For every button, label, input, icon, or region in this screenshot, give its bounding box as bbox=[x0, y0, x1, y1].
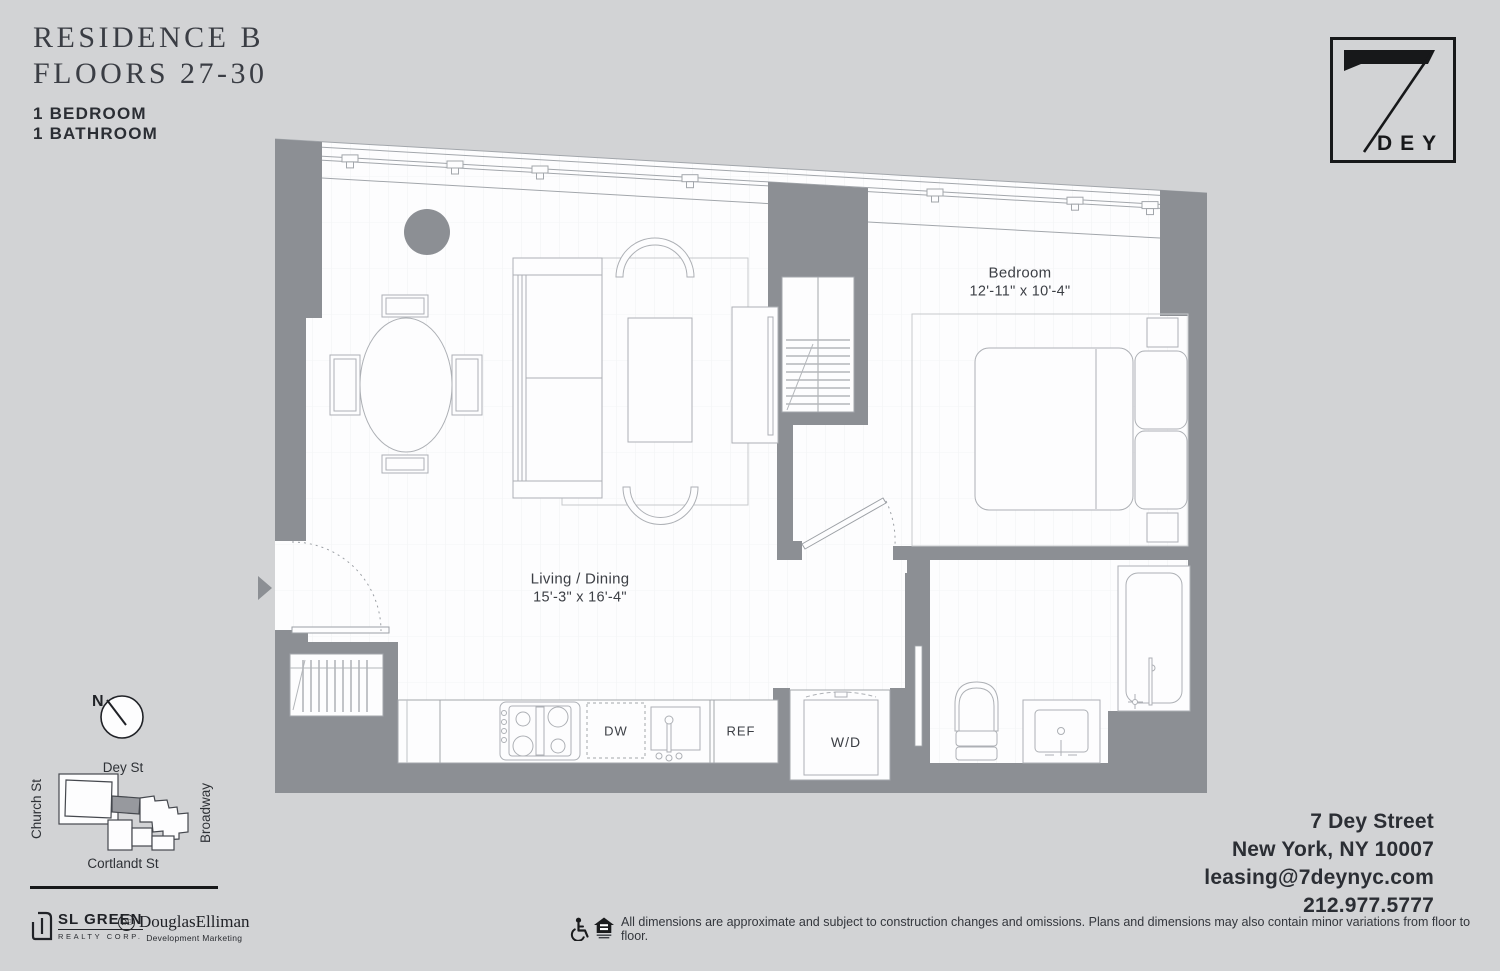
douglas-elliman-logo: DE DouglasElliman Development Marketing bbox=[118, 912, 249, 943]
shaft-bottom-wall bbox=[768, 412, 868, 425]
disclaimer-text: All dimensions are approximate and subje… bbox=[621, 915, 1500, 943]
building-footprints bbox=[59, 774, 188, 850]
bathroom-corner-block bbox=[1108, 711, 1190, 763]
logo-name: DEY bbox=[1377, 132, 1444, 155]
contact-street: 7 Dey Street bbox=[1204, 808, 1434, 836]
douglas-elliman-sub: Development Marketing bbox=[139, 933, 249, 943]
door-jamb-stub bbox=[777, 541, 802, 560]
seven-dey-logo-icon: DEY bbox=[1333, 40, 1452, 159]
building-logo: DEY bbox=[1330, 37, 1456, 163]
nightstand bbox=[1147, 318, 1178, 347]
dining-chair bbox=[452, 355, 482, 415]
bedroom-label: Bedroom 12'-11" x 10'-4" bbox=[970, 265, 1071, 300]
living-dimensions: 15'-3" x 16'-4" bbox=[531, 590, 630, 606]
bedroom-bottom-wall bbox=[930, 546, 1188, 560]
bedroom-door-post bbox=[893, 546, 930, 560]
subject-building bbox=[112, 796, 140, 814]
compass: N bbox=[92, 693, 143, 738]
bathroom-count: 1 BATHROOM bbox=[33, 124, 268, 144]
wheelchair-icon bbox=[570, 917, 590, 941]
living-label: Living / Dining 15'-3" x 16'-4" bbox=[531, 571, 630, 606]
core-shaft bbox=[782, 277, 854, 412]
mattress bbox=[975, 348, 1133, 510]
residence-title: RESIDENCE B bbox=[33, 20, 268, 56]
dining-chair bbox=[330, 355, 360, 415]
entry-arrow-icon bbox=[258, 576, 272, 600]
nightstand bbox=[1147, 513, 1178, 542]
floorplan-page: { "header": { "residence": "RESIDENCE B"… bbox=[0, 0, 1500, 971]
site-map: N Dey St Church St Broadway Cortlandt St bbox=[20, 688, 235, 884]
vanity-sink bbox=[1023, 700, 1100, 763]
north-label: N bbox=[92, 693, 104, 710]
bedroom-dimensions: 12'-11" x 10'-4" bbox=[970, 284, 1071, 300]
media-console bbox=[732, 307, 778, 443]
contact-email[interactable]: leasing@7deynyc.com bbox=[1204, 864, 1434, 892]
street-broadway: Broadway bbox=[198, 783, 213, 843]
bathroom-pocket-door bbox=[915, 646, 922, 746]
pillow bbox=[1135, 431, 1187, 509]
street-cortlandt: Cortlandt St bbox=[87, 856, 159, 871]
refrigerator-label: REF bbox=[727, 724, 756, 739]
tv bbox=[768, 317, 773, 435]
dining-table bbox=[360, 318, 452, 452]
contact-city: New York, NY 10007 bbox=[1204, 836, 1434, 864]
douglas-elliman-monogram-icon: DE bbox=[118, 914, 135, 931]
coffee-table bbox=[628, 318, 692, 442]
dining-chair bbox=[382, 295, 428, 317]
living-bedroom-divider-wall bbox=[777, 425, 793, 546]
dining-chair bbox=[382, 455, 428, 473]
dishwasher-label: DW bbox=[604, 724, 628, 739]
bedroom-name: Bedroom bbox=[970, 265, 1071, 282]
floor-plan bbox=[255, 130, 1215, 800]
douglas-elliman-name: DouglasElliman bbox=[139, 912, 249, 932]
pillow bbox=[1135, 351, 1187, 429]
contact-block: 7 Dey Street New York, NY 10007 leasing@… bbox=[1204, 808, 1434, 920]
floors-title: FLOORS 27-30 bbox=[33, 56, 268, 92]
entry-closet bbox=[290, 654, 383, 716]
wd-closet-right-wall bbox=[890, 688, 905, 763]
disclaimer-icons bbox=[570, 917, 614, 941]
toilet bbox=[955, 682, 998, 760]
footer-divider bbox=[30, 886, 218, 889]
header: RESIDENCE B FLOORS 27-30 1 BEDROOM 1 BAT… bbox=[33, 20, 268, 144]
shaft-right-wall bbox=[854, 277, 868, 425]
sl-green-mark-icon bbox=[31, 910, 53, 942]
structural-column bbox=[404, 209, 450, 255]
disclaimer: All dimensions are approximate and subje… bbox=[570, 915, 1500, 943]
equal-housing-icon bbox=[594, 917, 614, 941]
living-name: Living / Dining bbox=[531, 571, 630, 588]
washer-dryer-label: W/D bbox=[831, 734, 861, 750]
street-dey: Dey St bbox=[103, 760, 144, 775]
street-church: Church St bbox=[29, 779, 44, 839]
sofa bbox=[513, 258, 602, 498]
bedroom-door-post-stem bbox=[907, 560, 930, 573]
bathtub bbox=[1118, 566, 1190, 711]
core-shaft-top bbox=[768, 182, 868, 277]
bedroom-count: 1 BEDROOM bbox=[33, 104, 268, 124]
